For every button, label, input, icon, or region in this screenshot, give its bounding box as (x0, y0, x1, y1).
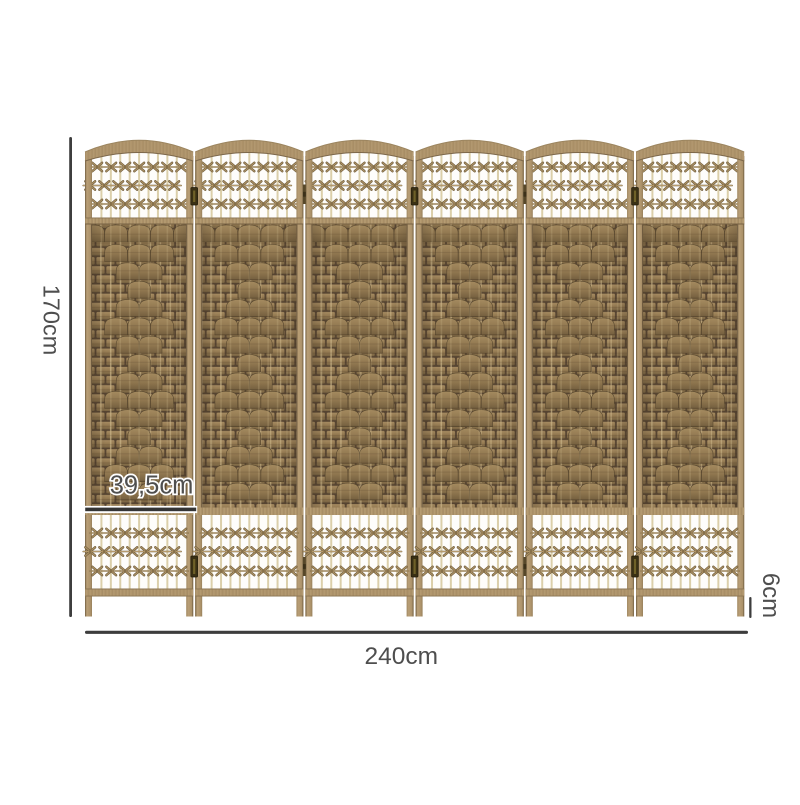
svg-text:240cm: 240cm (365, 643, 439, 670)
svg-text:39,5cm: 39,5cm (110, 472, 194, 500)
svg-text:6cm: 6cm (757, 573, 784, 618)
svg-text:170cm: 170cm (39, 285, 65, 356)
